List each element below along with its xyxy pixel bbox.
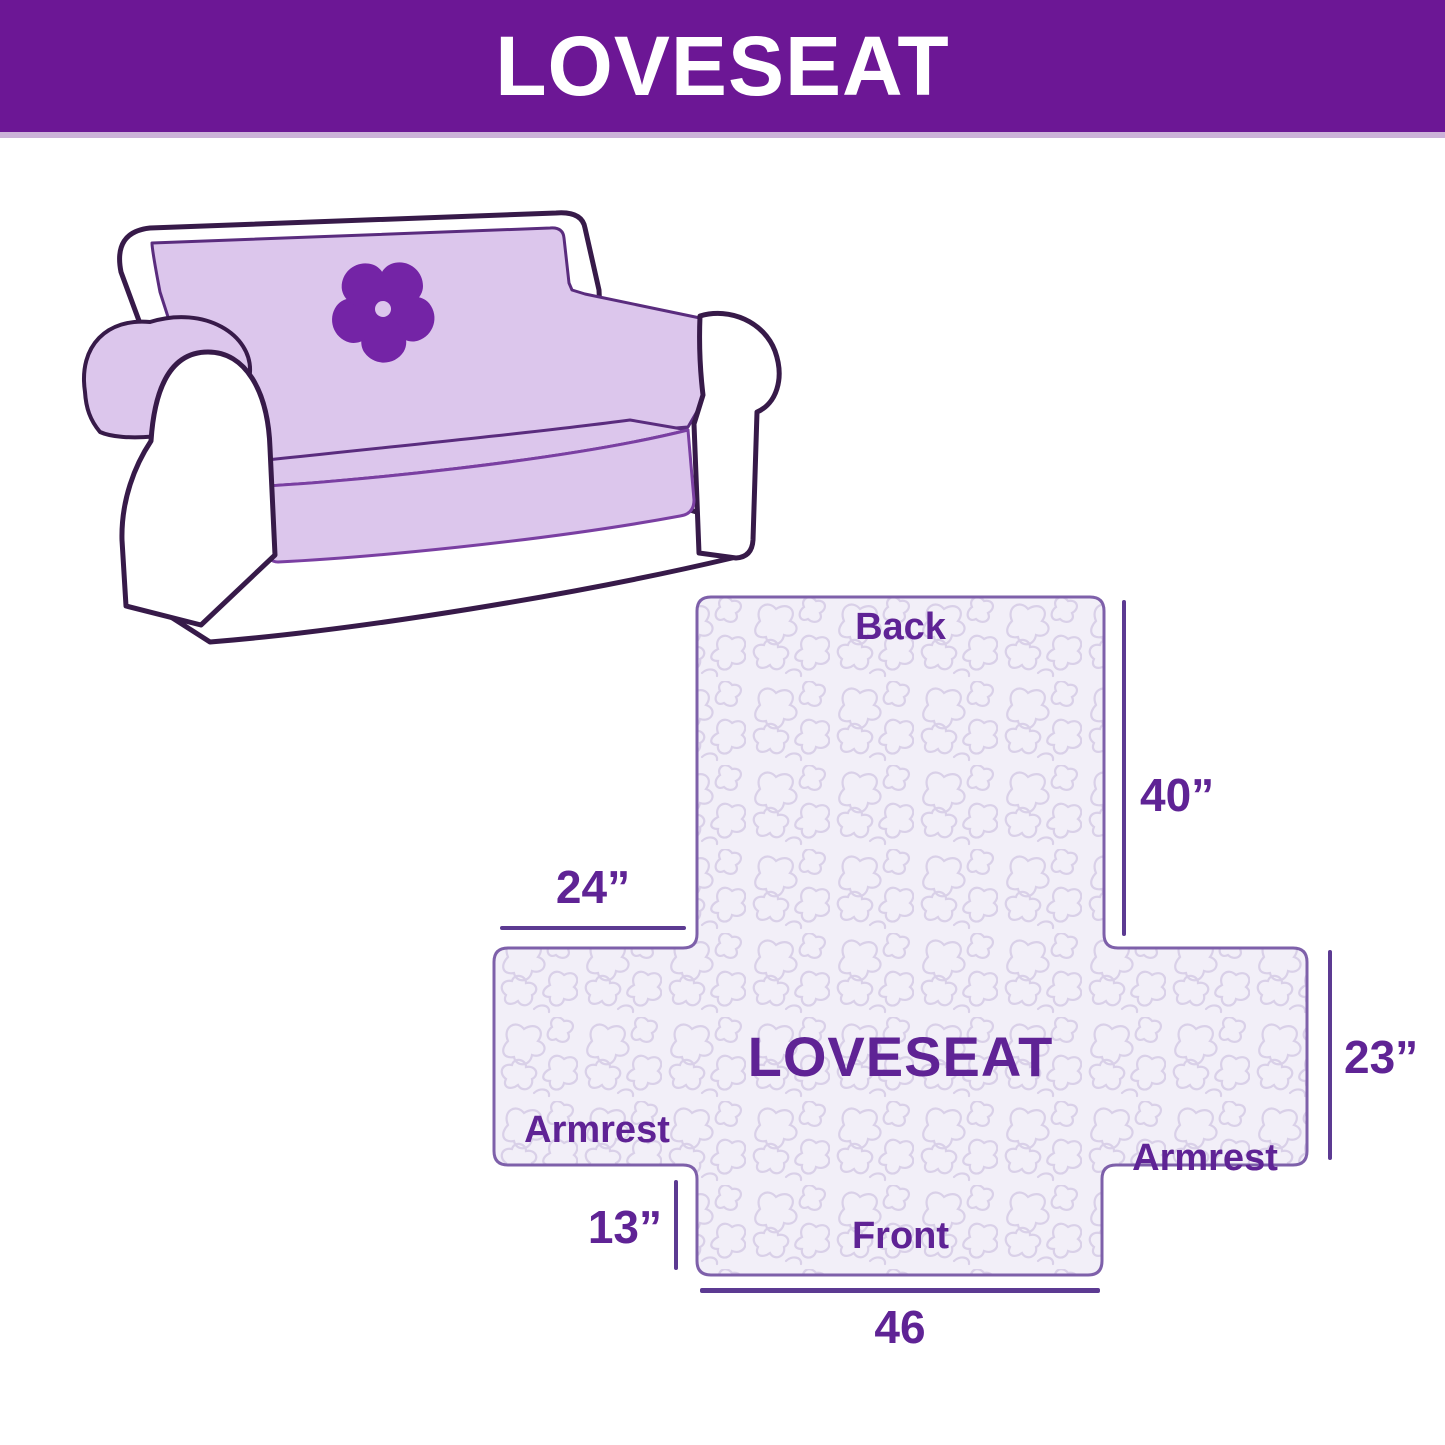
center-loveseat-label: LOVESEAT [697, 1026, 1104, 1088]
armrest-right-label: Armrest [1102, 1138, 1308, 1180]
dim-back-height: 40” [1140, 770, 1214, 821]
title-banner: LOVESEAT [0, 0, 1445, 138]
dim-line-armrest-height [1328, 950, 1332, 1160]
dim-armrest-top-width: 24” [500, 862, 686, 913]
cover-cross-shape [494, 597, 1307, 1275]
page-title: LOVESEAT [495, 24, 950, 108]
front-label: Front [697, 1216, 1104, 1258]
dim-line-front-width [700, 1288, 1100, 1293]
dim-line-back-height [1122, 600, 1126, 936]
sofa-drawing [60, 190, 800, 660]
dim-front-flap-height: 13” [574, 1202, 662, 1253]
armrest-left-label: Armrest [494, 1110, 700, 1152]
loveseat-cover-infographic: LOVESEAT [0, 0, 1445, 1445]
dim-line-armrest-top-width [500, 926, 686, 930]
cross-outline [494, 597, 1307, 1275]
dim-armrest-height: 23” [1344, 1032, 1418, 1083]
dim-line-front-flap-height [674, 1180, 678, 1270]
dim-front-width: 46 [700, 1302, 1100, 1353]
loveseat-illustration [60, 190, 800, 660]
sofa-right-arm [694, 313, 779, 558]
